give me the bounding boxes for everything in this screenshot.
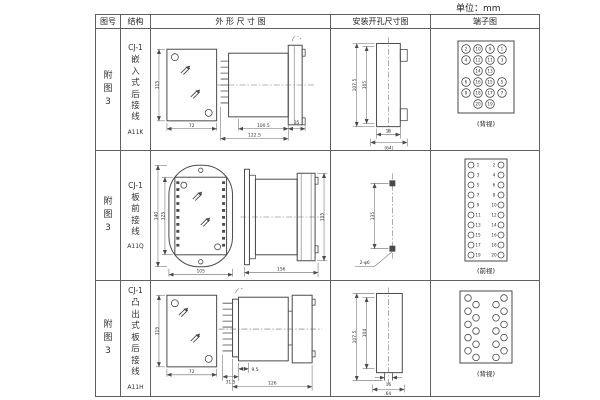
row3-mounting-diagram: 107.5 104 16 64 [331, 281, 430, 396]
terminal-number: 10 [475, 46, 481, 51]
terminal-number: 1 [477, 162, 480, 167]
terminal-number: 19 [475, 252, 481, 257]
figure-number: 附图3 [104, 319, 113, 358]
terminal-number: 20 [491, 252, 497, 257]
row3-figure-cell: 附图3 [96, 281, 121, 396]
header-outline: 外 形 尺 寸 图 [151, 15, 331, 29]
terminal-grid: 2 10 9 1 4 12 11 3 14 13 6 16 15 5 8 18 [462, 44, 507, 108]
dim-label: 104 [362, 329, 368, 338]
dim-label: 64 [386, 391, 392, 396]
front-view: 140 125 105 [153, 165, 232, 276]
row3-outline-cell: 115 72 9.5 [151, 281, 331, 396]
dim-label: 125 [160, 211, 166, 220]
terminal-number: 4 [465, 57, 468, 62]
model-label: CJ-1 [128, 43, 143, 52]
terminal-number: 2 [465, 46, 468, 51]
terminal-number: 20 [475, 101, 481, 106]
structure-label: 板前接线 [131, 193, 140, 239]
figure-number: 附图3 [104, 196, 113, 235]
terminal-number: 15 [487, 79, 493, 84]
side-view: 156 115 [241, 169, 328, 276]
drill-hole [389, 245, 395, 251]
spec-table: 图号 结构 外 形 尺 寸 图 安装开孔尺寸图 端子图 附图3 CJ-1 嵌入式… [95, 14, 540, 397]
row1-structure-cell: CJ-1 嵌入式后接线 A11K [121, 29, 151, 151]
terminal-number: 5 [477, 182, 480, 187]
row2-mounting-diagram: 135 2-φ6 [331, 151, 430, 281]
terminal-number: 9 [477, 202, 480, 207]
mounting-hole-icon [171, 53, 178, 60]
view-label: (背视) [477, 119, 495, 128]
terminal-number: 6 [493, 182, 496, 187]
terminal-number: 8 [493, 192, 496, 197]
row2-structure-cell: CJ-1 板前接线 A11Q [121, 151, 151, 281]
structure-label: 嵌入式后接线 [131, 55, 140, 124]
model-label: CJ-1 [128, 286, 143, 295]
row2-mounting-cell: 135 2-φ6 [331, 151, 431, 281]
hatch-arrow-icon [201, 217, 210, 226]
dim-label: 122.5 [248, 132, 261, 138]
row3-outline-diagram: 115 72 9.5 [151, 281, 330, 396]
dim-label: 9.5 [251, 367, 258, 373]
dim-label: 126 [268, 381, 277, 387]
dim-width-label: 72 [189, 122, 195, 128]
pin-comb [223, 303, 233, 351]
header-structure: 结构 [121, 15, 151, 29]
row1-mounting-cell: 107.5 105 16 (64) [331, 29, 431, 151]
terminal-number: 14 [491, 222, 497, 227]
dim-label: 140 [153, 211, 159, 220]
terminal-number: 1 [501, 46, 504, 51]
row2-figure-cell: 附图3 [96, 151, 121, 281]
dim-label: 72 [189, 369, 195, 375]
type-code: A11Q [127, 243, 143, 250]
terminal-number: 17 [475, 242, 481, 247]
row1-mounting-diagram: 107.5 105 16 (64) [331, 29, 430, 151]
front-view: 115 72 [154, 295, 216, 377]
hatch-arrow-icon [179, 308, 188, 317]
terminal-number: 6 [465, 79, 468, 84]
row1-terminal-diagram: 2 10 9 1 4 12 11 3 14 13 6 16 15 5 8 18 [431, 29, 539, 151]
terminal-number: 10 [491, 202, 497, 207]
mounting-hole-icon [215, 243, 221, 249]
cutout-profile [377, 288, 403, 385]
dim-label: 107.5 [352, 330, 358, 343]
dim-height-label: 115 [154, 80, 160, 89]
terminal-number: 5 [501, 79, 504, 84]
dim-label: 16 [386, 128, 392, 134]
type-code: A11H [127, 384, 143, 391]
terminal-number: 2 [493, 162, 496, 167]
terminal-number: 17 [487, 90, 493, 95]
terminal-number: 3 [477, 172, 480, 177]
row2-terminal-cell: 1 3 5 7 9 11 13 15 17 19 2 4 6 8 10 12 1 [431, 151, 539, 281]
hatch-arrow-icon [181, 65, 190, 74]
cutout-profile [377, 37, 408, 132]
hatch-arrow-icon [191, 334, 200, 343]
mounting-hole-icon [205, 109, 212, 116]
clamp-hook [236, 288, 244, 293]
terminal-number: 18 [491, 242, 497, 247]
view-label: (前视) [477, 266, 495, 275]
terminal-number: 13 [475, 222, 481, 227]
dim-label: 31.5 [226, 380, 236, 386]
terminal-number: 14 [475, 68, 481, 73]
row2-terminal-diagram: 1 3 5 7 9 11 13 15 17 19 2 4 6 8 10 12 1 [431, 151, 539, 281]
front-view: 115 72 [154, 49, 216, 131]
model-label: CJ-1 [128, 181, 143, 190]
header-terminal: 端子图 [431, 15, 539, 29]
structure-label: 凸出式板后接线 [131, 298, 140, 378]
dim-label: 115 [320, 212, 326, 221]
row1-outline-diagram: 115 72 100.5 [151, 29, 330, 151]
row3-structure-cell: CJ-1 凸出式板后接线 A11H [121, 281, 151, 396]
figure-number: 附图3 [104, 70, 113, 109]
terminal-number: 16 [491, 232, 497, 237]
dim-label: 105 [196, 268, 205, 274]
terminal-number: 18 [475, 90, 481, 95]
terminal-grid: 1 3 5 7 9 11 13 15 17 19 2 4 6 8 10 12 1 [468, 162, 504, 258]
terminal-number: 12 [491, 212, 497, 217]
terminal-number: 4 [493, 172, 496, 177]
row3-terminal-cell: (背视) [431, 281, 539, 396]
hole-spec-label: 2-φ6 [360, 260, 370, 266]
dim-label: 100.5 [257, 122, 270, 128]
view-label: (背视) [477, 369, 495, 378]
terminal-number: 13 [487, 68, 493, 73]
row3-mounting-cell: 107.5 104 16 64 [331, 281, 431, 396]
side-view: 9.5 31.5 126 [219, 288, 322, 390]
terminal-number: 9 [489, 46, 492, 51]
terminal-number: 7 [501, 90, 504, 95]
terminal-number: 12 [475, 57, 481, 62]
dim-label: 115 [154, 327, 160, 336]
dim-label: (64) [384, 145, 393, 151]
terminal-number: 11 [475, 212, 481, 217]
row1-figure-cell: 附图3 [96, 29, 121, 151]
header-mounting: 安装开孔尺寸图 [331, 15, 431, 29]
hatch-arrow-icon [191, 89, 200, 98]
type-code: A11K [128, 129, 144, 136]
terminal-grid [465, 295, 508, 361]
dim-label: 105 [362, 80, 368, 89]
terminal-number: 15 [475, 232, 481, 237]
row1-outline-cell: 115 72 100.5 [151, 29, 331, 151]
hatch-arrow-icon [193, 191, 202, 200]
side-view: 100.5 35 122.5 [217, 36, 316, 141]
dim-label: 135 [370, 211, 376, 220]
dim-label: 156 [277, 266, 286, 272]
terminal-number: 16 [475, 79, 481, 84]
mounting-hole-icon [205, 355, 212, 362]
spec-sheet-page: 单位：mm 图号 结构 外 形 尺 寸 图 安装开孔尺寸图 端子图 附图3 CJ… [0, 0, 600, 400]
header-figure: 图号 [96, 15, 121, 29]
terminal-number: 11 [487, 57, 493, 62]
dim-label: 16 [386, 382, 392, 388]
clamp-hook [292, 36, 301, 41]
unit-label: 单位：mm [456, 1, 501, 14]
mounting-hole-icon [181, 182, 187, 188]
drill-hole [389, 180, 395, 186]
terminal-number: 19 [487, 101, 493, 106]
row2-outline-diagram: 140 125 105 [151, 151, 330, 281]
row1-terminal-cell: 2 10 9 1 4 12 11 3 14 13 6 16 15 5 8 18 [431, 29, 539, 151]
mounting-hole-icon [171, 300, 178, 307]
row3-terminal-diagram: (背视) [431, 281, 539, 396]
row2-outline-cell: 140 125 105 [151, 151, 331, 281]
dim-label: 35 [294, 119, 300, 125]
pin-comb [221, 61, 229, 103]
terminal-number: 7 [477, 192, 480, 197]
terminal-number: 3 [501, 57, 504, 62]
terminal-number: 8 [465, 90, 468, 95]
dim-label: 107.5 [352, 78, 358, 91]
